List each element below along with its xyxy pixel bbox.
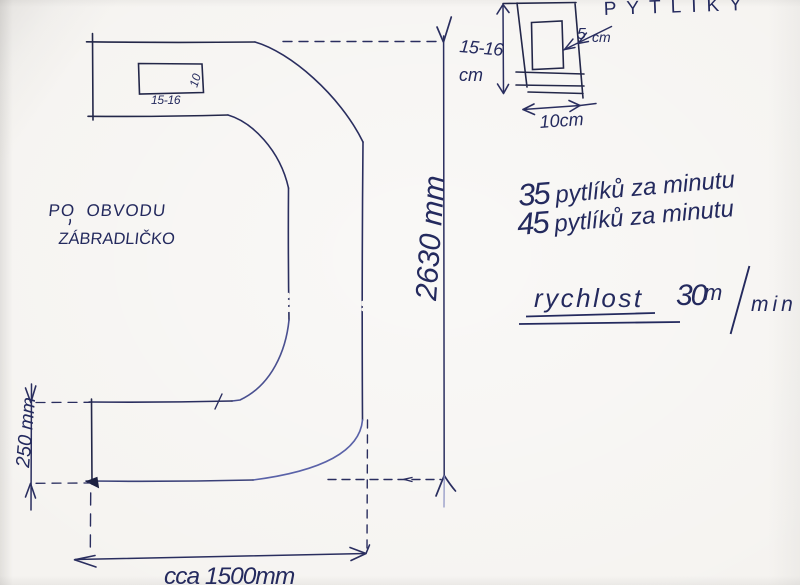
svg-text:PO OBVODU: PO OBVODU: [48, 201, 168, 220]
svg-text:PYTLÍKY: PYTLÍKY: [603, 0, 752, 20]
svg-text:min: min: [751, 293, 797, 316]
svg-text:rychlost: rychlost: [534, 283, 644, 313]
svg-text:15-16: 15-16: [151, 93, 181, 107]
svg-text:cm: cm: [459, 65, 483, 85]
svg-text:250 mm: 250 mm: [12, 396, 40, 469]
svg-text:2630 mm: 2630 mm: [410, 174, 452, 302]
svg-text:10: 10: [187, 72, 205, 89]
svg-text:10cm: 10cm: [539, 109, 584, 132]
svg-text:5: 5: [577, 26, 586, 43]
svg-text:30: 30: [676, 279, 708, 312]
svg-text:cca 1500mm: cca 1500mm: [164, 563, 295, 585]
svg-text:cm: cm: [592, 29, 611, 45]
svg-text:ZÁBRADLIČKO: ZÁBRADLIČKO: [58, 229, 176, 248]
svg-text:m: m: [704, 280, 722, 305]
svg-text:15-16: 15-16: [459, 36, 506, 60]
